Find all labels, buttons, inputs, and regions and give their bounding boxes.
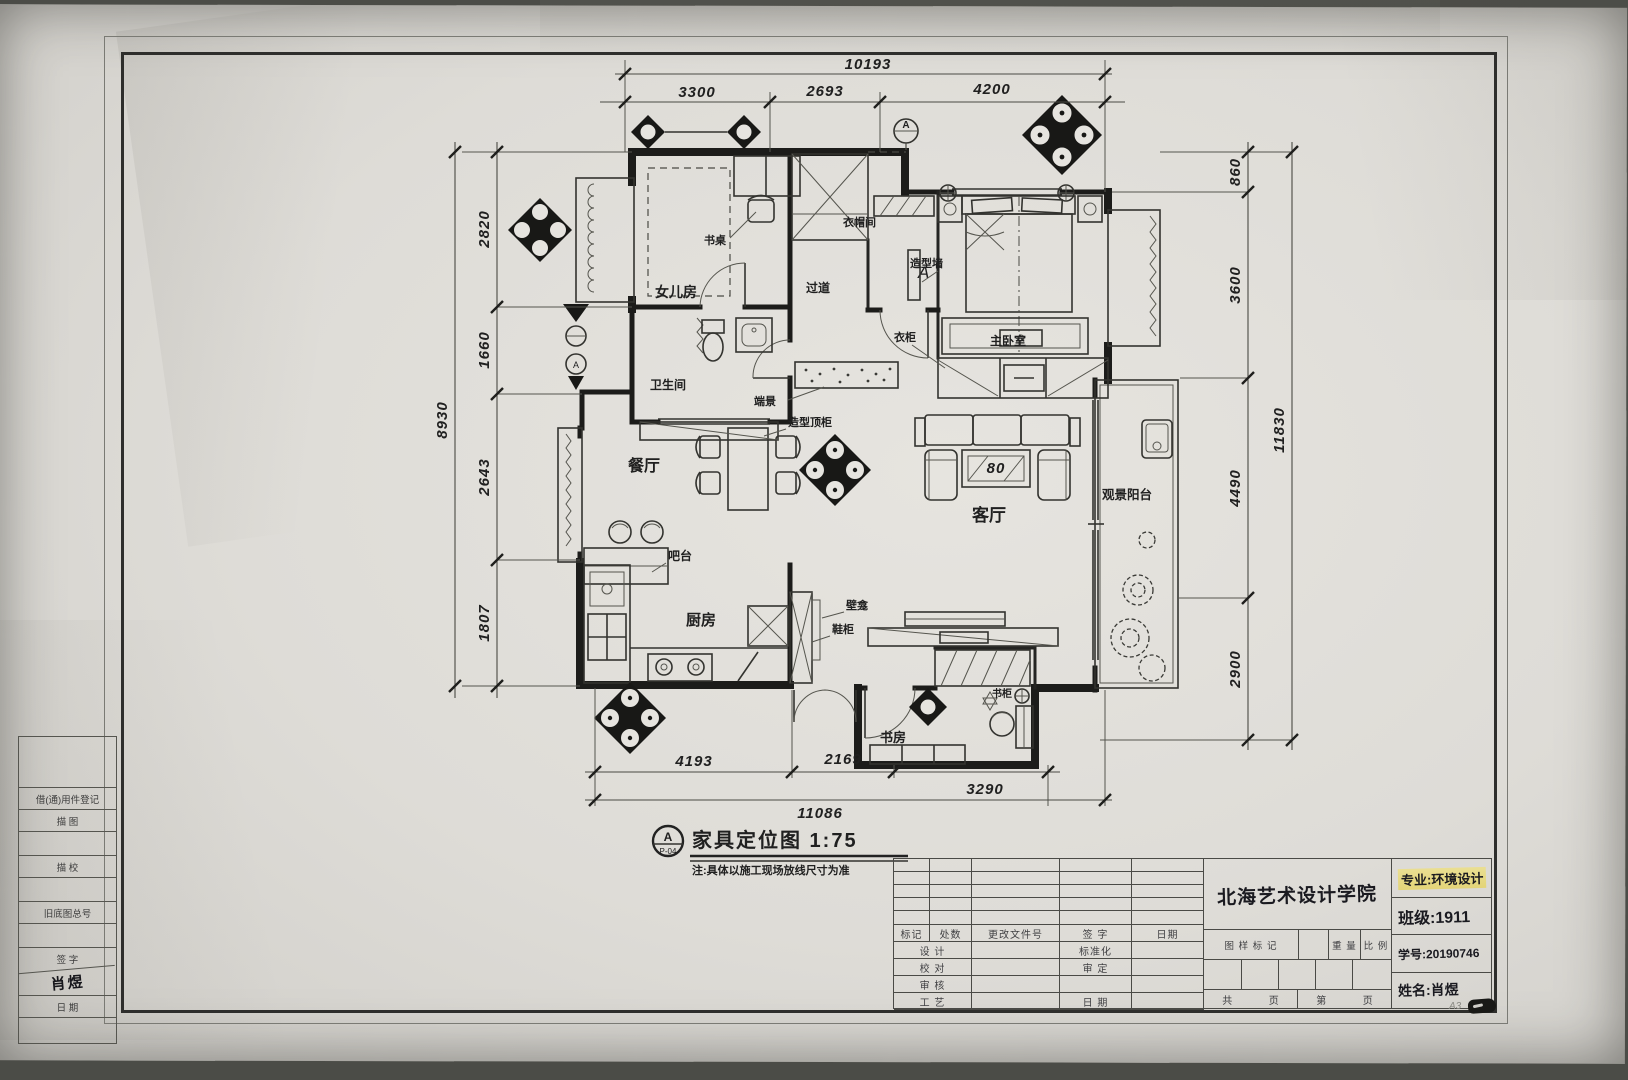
label-shoe-cabinet: 鞋柜 — [832, 622, 854, 636]
vanity — [736, 318, 772, 352]
balcony-structure — [1088, 380, 1178, 688]
row-date-label: 日 期 — [19, 995, 116, 1017]
coffee-table-size: 80 — [987, 460, 1006, 477]
dim-top-total: 10193 — [845, 56, 892, 73]
armchair — [925, 450, 957, 500]
toilet-tank — [702, 320, 724, 333]
room-label-living: 客厅 — [971, 505, 1006, 525]
desk-chair — [748, 200, 774, 222]
role-craft: 工 艺 — [894, 993, 972, 1010]
dim-left-total: 8930 — [434, 401, 451, 438]
section-bubble-letter: A — [902, 120, 909, 131]
photo-of-floor-plan-sheet: { "sheet": { "size_label": "A3" }, "left… — [0, 0, 1628, 1080]
room-label-master-bedroom: 主卧室 — [990, 333, 1026, 348]
room-label-corridor: 过道 — [806, 280, 830, 295]
drawing-note: 注:具体以施工现场放线尺寸为准 — [692, 863, 850, 877]
row-old-drawing-no: 旧底图总号 — [19, 901, 116, 923]
label-wall-niche: 壁龛 — [846, 598, 869, 612]
pages-total-unit: 页 — [1251, 992, 1298, 1007]
rev-header-date: 日期 — [1132, 925, 1204, 942]
title-block-center: 北海艺术设计学院 图 样 标 记 重 量 比 例 共 页 第 页 — [1204, 859, 1391, 1008]
rev-header-doc-no: 更改文件号 — [972, 925, 1060, 942]
role-check: 校 对 — [894, 959, 972, 976]
master-bedroom-furniture — [795, 196, 1108, 398]
label-bookcase: 书柜 — [992, 687, 1012, 700]
dim-right-seg4: 2900 — [1227, 650, 1244, 688]
sofa-seat — [1021, 415, 1069, 445]
dim-left-seg1: 2820 — [476, 210, 493, 248]
dining-chairs — [696, 436, 800, 494]
title-block: 标记 处数 更改文件号 签 字 日期 设 计 标准化 校 对 审 定 审 核 工… — [893, 858, 1492, 1009]
balcony-plants — [1111, 532, 1165, 681]
dim-top-seg3: 4200 — [972, 81, 1010, 98]
revision-table: 标记 处数 更改文件号 签 字 日期 设 计 标准化 校 对 审 定 审 核 工… — [894, 859, 1204, 1008]
room-label-balcony: 观景阳台 — [1102, 487, 1152, 502]
dim-left-seg4: 1807 — [476, 604, 493, 641]
living-furniture: 80 — [868, 415, 1080, 646]
room-label-girls-room: 女儿房 — [655, 284, 697, 300]
dim-right-seg3: 4490 — [1227, 469, 1244, 507]
label-desk: 书桌 — [704, 233, 727, 247]
stamp-mark-label: 图 样 标 记 — [1204, 930, 1299, 959]
dim-top-seg2: 2693 — [805, 83, 843, 100]
left-registration-strip: 借(通)用件登记 描 图 描 校 旧底图总号 签 字 肖煜 日 期 — [18, 736, 117, 1044]
dim-right-seg1: 860 — [1227, 158, 1244, 186]
page-count-row: 共 页 第 页 — [1204, 990, 1391, 1008]
school-name-box: 北海艺术设计学院 — [1204, 859, 1391, 930]
label-shaped-top-cabinet: 造型顶柜 — [788, 415, 832, 429]
label-wardrobe: 衣柜 — [894, 330, 916, 344]
room-label-bathroom: 卫生间 — [650, 377, 686, 392]
drawing-title: 家具定位图 1:75 — [692, 828, 858, 852]
drawing-title-callout: A P-04 家具定位图 1:75 注:具体以施工现场放线尺寸为准 — [653, 826, 908, 877]
toilet — [703, 333, 723, 361]
room-labels: 女儿房 卫生间 过道 衣帽间 主卧室 餐厅 厨房 客厅 观景阳台 书房 — [627, 215, 1152, 745]
label-end-table: 端景 — [754, 394, 776, 408]
room-label-kitchen: 厨房 — [686, 611, 716, 629]
stamp-weight-label: 重 量 — [1329, 930, 1361, 959]
nightstand — [938, 196, 962, 222]
pages-total-label: 共 — [1204, 992, 1251, 1007]
dim-right-seg2: 3600 — [1227, 266, 1244, 303]
dim-right: 860 3600 4490 2900 11830 — [1100, 142, 1298, 750]
rev-header-mark: 标记 — [894, 925, 930, 942]
stamp-logo — [1468, 998, 1497, 1014]
stamp-scale-label: 比 例 — [1361, 930, 1391, 959]
field-class: 班级:1911 — [1392, 898, 1492, 935]
dim-bottom-total: 11086 — [797, 805, 843, 822]
study-furniture — [870, 650, 1033, 764]
girls-room-furniture — [648, 154, 868, 296]
armchair — [1038, 450, 1070, 500]
student-info-column: 专业:环境设计 班级:1911 学号:20190746 姓名:肖煜 — [1391, 859, 1492, 1008]
row-borrowed-parts: 借(通)用件登记 — [19, 787, 116, 809]
marker-letter: A — [573, 360, 579, 370]
school-name: 北海艺术设计学院 — [1217, 878, 1378, 909]
role-date: 日 期 — [1060, 993, 1132, 1010]
dim-left-seg2: 1660 — [476, 331, 493, 368]
dim-top-seg1: 3300 — [678, 84, 715, 101]
role-approve: 审 定 — [1060, 959, 1132, 976]
pages-no-unit: 页 — [1345, 992, 1392, 1007]
rev-header-signature: 签 字 — [1060, 925, 1132, 942]
field-student-id: 学号:20190746 — [1392, 935, 1492, 973]
dim-bottom-seg2: 2169 — [823, 751, 861, 768]
dim-bottom-seg1: 4193 — [674, 753, 712, 770]
dim-right-total: 11830 — [1271, 407, 1288, 453]
sheet-size-label: A3 — [1449, 1001, 1461, 1012]
role-design: 设 计 — [894, 942, 972, 959]
role-standardization: 标准化 — [1060, 942, 1132, 959]
callout-bubble-code: P-04 — [660, 847, 677, 856]
role-review: 审 核 — [894, 976, 972, 993]
end-table-cabinet — [795, 362, 898, 388]
floor-plan-drawing: A — [420, 30, 1320, 880]
stove — [648, 654, 712, 681]
label-bar: 吧台 — [668, 548, 692, 563]
row-tracing-check: 描 校 — [19, 855, 116, 877]
room-label-cloakroom: 衣帽间 — [843, 215, 876, 229]
field-major: 专业:环境设计 — [1392, 859, 1492, 898]
nightstand — [1078, 196, 1102, 222]
room-label-study: 书房 — [880, 730, 906, 745]
label-feature-wall: 造型墙 — [910, 256, 943, 270]
sofa-seat — [925, 415, 973, 445]
dim-bottom-seg3: 3290 — [966, 781, 1003, 798]
dim-left-seg3: 2643 — [476, 458, 493, 496]
rev-header-count: 处数 — [930, 925, 972, 942]
row-tracing: 描 图 — [19, 809, 116, 831]
room-label-dining: 餐厅 — [627, 456, 660, 475]
wall-niche-box — [812, 600, 820, 660]
pages-no-label: 第 — [1298, 992, 1345, 1007]
callout-bubble-letter: A — [664, 830, 673, 844]
sofa-seat — [973, 415, 1021, 445]
